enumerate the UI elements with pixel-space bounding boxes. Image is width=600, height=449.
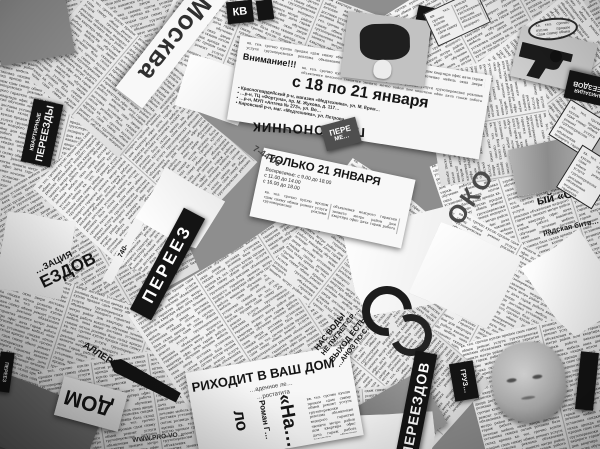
cup-shape [372,59,393,80]
face-mouth [521,396,535,401]
newsprint-text: кв. тел. срочно куплю продам сдам сниму … [302,386,361,440]
newspaper-collage-photo: кв. тел. срочно куплю продам сдам сниму … [0,0,600,449]
face-eye [506,377,516,382]
typewriter-silhouette [360,23,411,60]
lo-vertical: ло [229,409,252,433]
typewriter-photo [340,11,431,87]
face-eye [533,374,543,379]
kv-label: КВ [226,0,254,24]
left-edge-ribbon-text: ПЕРЕЕЗ [1,362,10,383]
na-quote-vertical: «На… [273,392,304,449]
kv-label-text: КВ [232,5,248,18]
black-label [256,0,275,21]
roman-vertical-text: Роман Г… [257,399,273,440]
gruz-text: ГРУЗ… [458,368,469,393]
phone-fragment-text: 7-44-06 [251,143,283,168]
